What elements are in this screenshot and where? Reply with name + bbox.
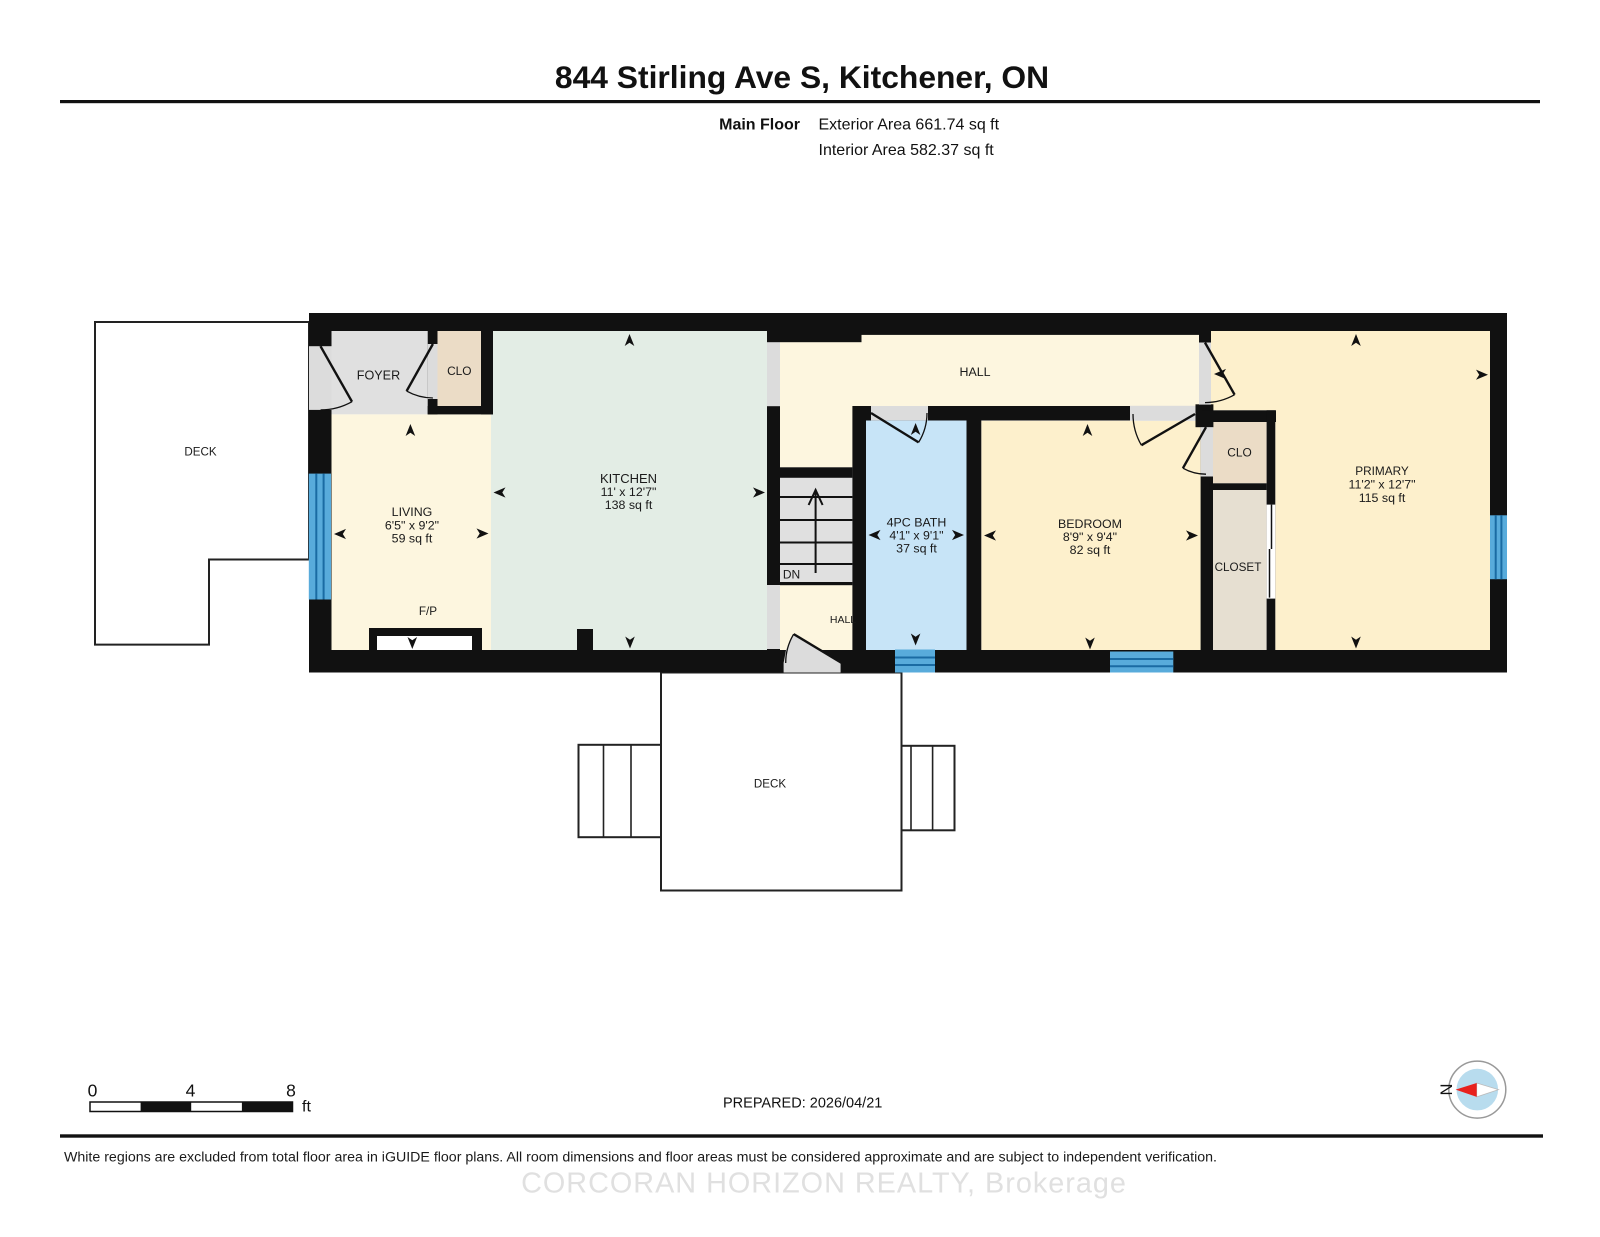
svg-text:DECK: DECK xyxy=(184,445,216,458)
svg-text:59 sq ft: 59 sq ft xyxy=(392,531,433,545)
svg-text:CLOSET: CLOSET xyxy=(1215,561,1262,574)
svg-text:PRIMARY: PRIMARY xyxy=(1355,464,1409,478)
svg-text:138 sq ft: 138 sq ft xyxy=(605,498,653,512)
svg-text:844 Stirling Ave S, Kitchener,: 844 Stirling Ave S, Kitchener, ON xyxy=(555,59,1049,95)
svg-text:CLO: CLO xyxy=(447,364,471,378)
svg-text:4PC BATH: 4PC BATH xyxy=(887,515,947,529)
svg-text:82 sq ft: 82 sq ft xyxy=(1070,543,1111,557)
svg-text:PREPARED: 2026/04/21: PREPARED: 2026/04/21 xyxy=(723,1096,882,1112)
svg-text:8'9" x 9'4": 8'9" x 9'4" xyxy=(1063,530,1117,544)
svg-text:KITCHEN: KITCHEN xyxy=(600,471,657,486)
svg-text:Interior Area 582.37 sq ft: Interior Area 582.37 sq ft xyxy=(819,142,995,159)
svg-text:11' x 12'7": 11' x 12'7" xyxy=(601,485,657,499)
svg-text:CORCORAN HORIZON REALTY, Broke: CORCORAN HORIZON REALTY, Brokerage xyxy=(521,1168,1127,1200)
svg-text:115 sq ft: 115 sq ft xyxy=(1359,491,1406,505)
svg-text:HALL: HALL xyxy=(830,614,856,626)
svg-text:8: 8 xyxy=(286,1081,296,1101)
svg-text:F/P: F/P xyxy=(419,605,437,618)
svg-text:ft: ft xyxy=(302,1098,311,1115)
svg-text:LIVING: LIVING xyxy=(392,505,433,519)
svg-text:37 sq ft: 37 sq ft xyxy=(896,541,937,555)
svg-text:HALL: HALL xyxy=(960,365,991,379)
svg-text:Exterior Area 661.74 sq ft: Exterior Area 661.74 sq ft xyxy=(819,117,1000,134)
svg-text:N: N xyxy=(1438,1084,1456,1096)
svg-text:0: 0 xyxy=(88,1081,98,1101)
svg-text:Main Floor: Main Floor xyxy=(719,117,800,134)
svg-text:4: 4 xyxy=(186,1081,196,1101)
svg-text:White regions are excluded fro: White regions are excluded from total fl… xyxy=(64,1150,1217,1166)
svg-text:FOYER: FOYER xyxy=(357,368,400,382)
svg-text:DN: DN xyxy=(783,568,800,582)
svg-text:6'5" x 9'2": 6'5" x 9'2" xyxy=(385,518,439,532)
svg-text:DECK: DECK xyxy=(754,777,786,790)
svg-text:CLO: CLO xyxy=(1227,445,1251,459)
svg-text:4'1" x 9'1": 4'1" x 9'1" xyxy=(889,528,943,542)
svg-text:BEDROOM: BEDROOM xyxy=(1058,517,1122,531)
svg-text:11'2" x 12'7": 11'2" x 12'7" xyxy=(1348,477,1415,491)
